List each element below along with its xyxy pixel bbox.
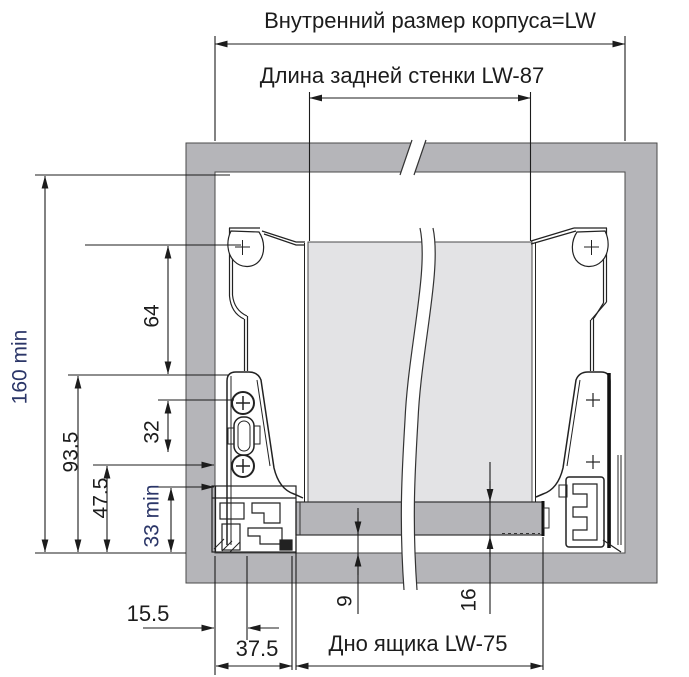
adjustment-screw-bottom: [232, 455, 254, 477]
dim-wall-to-panel-edge: 37.5: [236, 638, 279, 660]
drawer-bottom-label: Дно ящика LW-75: [329, 633, 508, 655]
dim-bottom-clearance-min: 33 min: [142, 484, 163, 547]
left-mount-hole-tab: [228, 231, 264, 267]
right-mount-hole-tab: [572, 231, 608, 267]
drawing-canvas: [0, 0, 689, 677]
left-lock-mechanism: [212, 486, 296, 552]
dim-hole-to-rail: 64: [142, 304, 163, 327]
back-wall-length-label: Длина задней стенки LW-87: [260, 65, 544, 87]
dim-wall-to-screw-axis: 15.5: [127, 603, 170, 625]
dim-mid-screw-height: 47.5: [91, 478, 112, 519]
dim-gap-under-bottom: 9: [335, 595, 356, 607]
technical-drawing: Внутренний размер корпуса=LW Длина задне…: [0, 0, 689, 677]
drawer-bottom-panel: [296, 501, 549, 536]
dim-bottom-panel-thickness: 16: [459, 588, 480, 611]
dim-bracket-top-height: 93.5: [61, 432, 82, 473]
cabinet-inner-width-label: Внутренний размер корпуса=LW: [264, 10, 596, 32]
dim-install-height-min: 160 min: [10, 330, 31, 405]
adjustment-screw-top: [232, 392, 254, 414]
dim-screw-spacing: 32: [142, 420, 163, 443]
right-runner-profile: [559, 477, 604, 547]
right-screw-marks: [586, 393, 600, 469]
